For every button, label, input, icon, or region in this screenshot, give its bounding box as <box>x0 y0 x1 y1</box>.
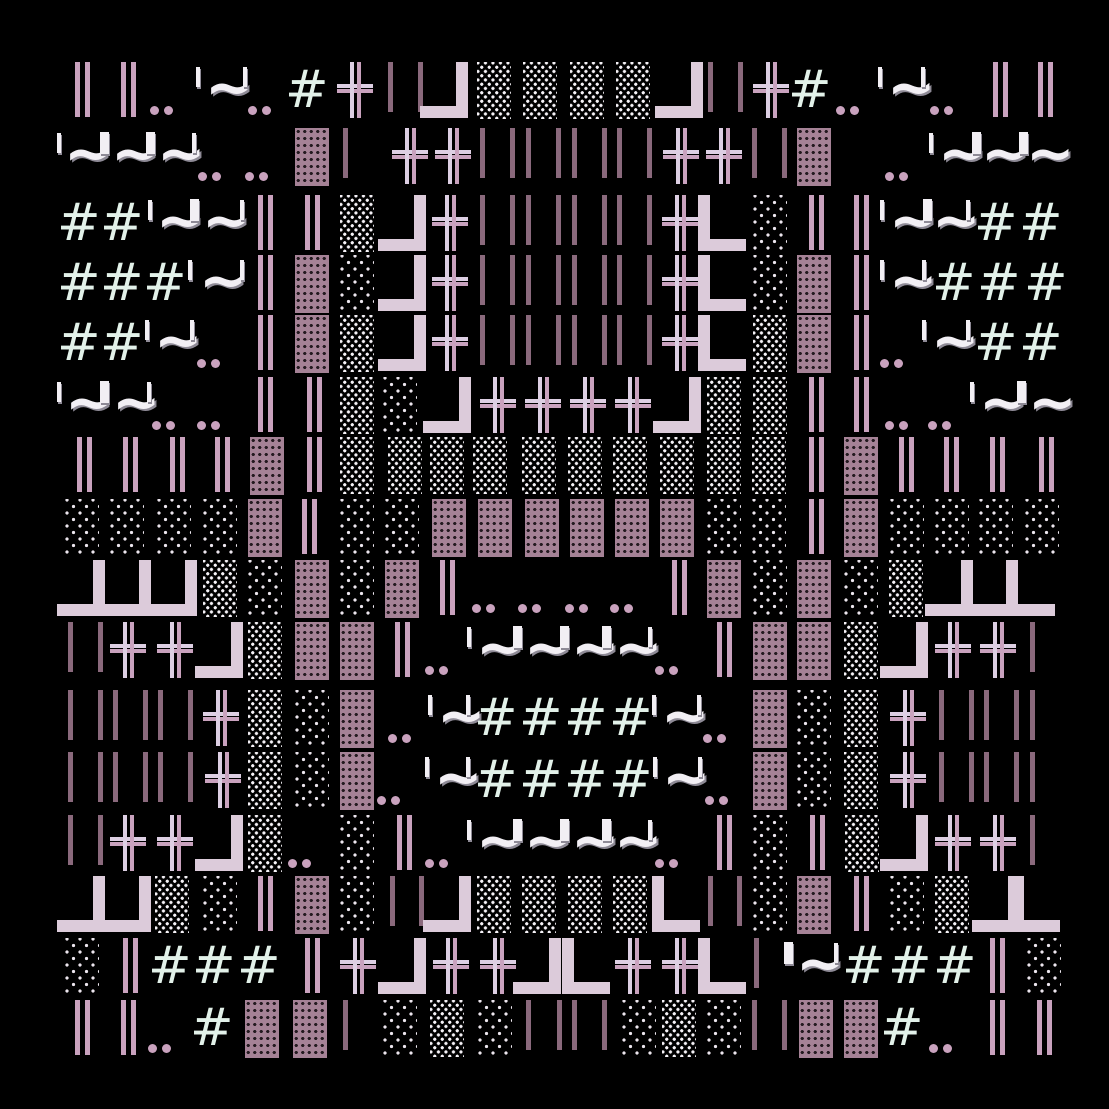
sparse-dot-block <box>203 876 237 933</box>
cross-glyph <box>753 62 789 118</box>
double-bar-glyph <box>307 377 322 432</box>
single-bar-glyph <box>343 1000 348 1050</box>
single-bar-glyph <box>1030 815 1035 865</box>
sparse-dot-block <box>65 499 99 556</box>
dot-pair-glyph <box>472 604 481 613</box>
single-bar-glyph <box>602 128 607 178</box>
dot-pair-glyph <box>885 421 894 430</box>
double-bar-glyph <box>75 1000 90 1055</box>
double-bar-glyph <box>1039 437 1054 492</box>
single-bar-glyph <box>1030 752 1035 802</box>
dense-dot-block <box>155 876 189 933</box>
corner-bottom-left-glyph <box>652 876 700 932</box>
double-bar-glyph <box>258 315 273 370</box>
cross-glyph <box>337 62 373 118</box>
corner-bottom-right-glyph <box>925 560 973 616</box>
single-bar-glyph <box>556 315 561 365</box>
mauve-dither-block <box>797 255 831 313</box>
mauve-dither-block <box>340 752 374 810</box>
sparse-dot-block <box>248 560 282 617</box>
corner-bottom-right-glyph <box>423 876 471 932</box>
cross-glyph <box>110 622 146 678</box>
cross-glyph <box>525 377 561 433</box>
double-bar-glyph <box>215 437 230 492</box>
single-bar-glyph <box>708 876 713 926</box>
quote-glyph <box>878 67 882 87</box>
single-bar-glyph <box>98 752 103 802</box>
hash-glyph: # <box>143 255 187 311</box>
dense-dot-block <box>473 437 507 494</box>
sparse-dot-block <box>890 499 924 556</box>
cross-glyph <box>662 255 698 311</box>
cross-glyph <box>203 690 239 746</box>
sparse-dot-block <box>707 499 741 556</box>
single-bar-glyph <box>647 128 652 178</box>
tilde-glyph: ~ <box>661 689 710 741</box>
tick-glyph <box>923 199 932 221</box>
dot-pair-glyph <box>198 172 207 181</box>
sparse-dot-block <box>890 876 924 933</box>
dense-dot-block <box>523 62 557 119</box>
cross-glyph <box>432 195 468 251</box>
double-bar-glyph <box>121 1000 136 1055</box>
quote-glyph <box>648 627 652 647</box>
mauve-dither-block <box>248 499 282 557</box>
single-bar-glyph <box>556 255 561 305</box>
quote-glyph <box>243 67 247 87</box>
single-bar-glyph <box>98 815 103 865</box>
cross-glyph <box>980 622 1016 678</box>
double-bar-glyph <box>899 437 914 492</box>
single-bar-glyph <box>526 315 531 365</box>
dense-dot-block <box>845 815 879 872</box>
dense-dot-block <box>522 437 556 494</box>
dot-pair-glyph <box>929 1044 938 1053</box>
single-bar-glyph <box>738 62 743 112</box>
cross-glyph <box>480 377 516 433</box>
cross-glyph <box>935 815 971 871</box>
sparse-dot-block <box>753 876 787 933</box>
single-bar-glyph <box>572 315 577 365</box>
single-bar-glyph <box>188 752 193 802</box>
mauve-dither-block <box>525 499 559 557</box>
quote-glyph <box>467 820 471 840</box>
dot-pair-glyph <box>655 666 664 675</box>
quote-glyph <box>190 320 194 340</box>
quote-glyph <box>970 382 974 402</box>
mauve-dither-block <box>660 499 694 557</box>
tick-glyph <box>190 199 199 221</box>
double-bar-glyph <box>809 437 824 492</box>
single-bar-glyph <box>617 128 622 178</box>
quote-glyph <box>240 200 244 220</box>
mauve-dither-block <box>295 315 329 373</box>
single-bar-glyph <box>572 1000 577 1050</box>
tilde-glyph: ~ <box>571 814 620 866</box>
hash-glyph: # <box>842 938 886 994</box>
dense-dot-block <box>753 377 787 434</box>
quote-glyph <box>653 757 657 777</box>
tilde-glyph: ~ <box>887 61 936 113</box>
single-bar-glyph <box>602 195 607 245</box>
dot-pair-glyph <box>288 859 297 868</box>
quote-glyph <box>834 943 838 963</box>
cross-glyph <box>432 255 468 311</box>
cross-glyph <box>205 752 241 808</box>
mauve-dither-block <box>753 690 787 748</box>
tilde-glyph: ~ <box>112 376 161 428</box>
single-bar-glyph <box>510 195 515 245</box>
cross-glyph <box>980 815 1016 871</box>
corner-bottom-right-glyph <box>513 938 561 994</box>
single-bar-glyph <box>510 255 515 305</box>
dense-dot-block <box>616 62 650 119</box>
double-bar-glyph <box>854 315 869 370</box>
single-bar-glyph <box>737 876 742 926</box>
tilde-glyph: ~ <box>571 621 620 673</box>
corner-bottom-right-glyph <box>378 195 426 251</box>
hash-glyph: # <box>1019 195 1063 251</box>
single-bar-glyph <box>647 195 652 245</box>
tick-glyph <box>100 132 109 154</box>
mauve-dither-block <box>295 560 329 618</box>
dense-dot-block <box>388 437 422 494</box>
sparse-dot-block <box>753 195 787 252</box>
ascii-art-canvas: ~##~~~~~~~##~~~~#####~~#####~~##~~~~~~~~… <box>0 0 1109 1109</box>
corner-bottom-right-glyph <box>103 560 151 616</box>
single-bar-glyph <box>1014 752 1019 802</box>
mauve-dither-block <box>385 560 419 618</box>
hash-glyph: # <box>974 315 1018 371</box>
single-bar-glyph <box>68 622 73 672</box>
cross-glyph <box>433 938 469 994</box>
single-bar-glyph <box>969 690 974 740</box>
dot-pair-glyph <box>655 859 664 868</box>
double-bar-glyph <box>258 195 273 250</box>
double-bar-glyph <box>1038 62 1053 117</box>
dense-dot-block <box>889 560 923 617</box>
single-bar-glyph <box>68 752 73 802</box>
sparse-dot-block <box>1027 938 1061 995</box>
cross-glyph <box>615 377 651 433</box>
single-bar-glyph <box>984 690 989 740</box>
single-bar-glyph <box>510 315 515 365</box>
mauve-dither-block <box>753 752 787 810</box>
single-bar-glyph <box>602 1000 607 1050</box>
sparse-dot-block <box>797 690 831 747</box>
double-bar-glyph <box>717 622 732 677</box>
cross-glyph <box>110 815 146 871</box>
hash-glyph: # <box>100 195 144 251</box>
single-bar-glyph <box>68 690 73 740</box>
quote-glyph <box>57 382 61 402</box>
double-bar-glyph <box>672 560 687 615</box>
corner-bottom-right-glyph <box>195 622 243 678</box>
double-bar-glyph <box>121 62 136 117</box>
double-bar-glyph <box>75 62 90 117</box>
hash-glyph: # <box>888 938 932 994</box>
hash-glyph: # <box>57 195 101 251</box>
quote-glyph <box>147 382 151 402</box>
tilde-glyph: ~ <box>1026 127 1075 179</box>
double-bar-glyph <box>170 437 185 492</box>
single-bar-glyph <box>390 876 395 926</box>
mauve-dither-block <box>844 1000 878 1058</box>
tick-glyph <box>1017 381 1026 403</box>
double-bar-glyph <box>854 255 869 310</box>
dense-dot-block <box>844 752 878 809</box>
single-bar-glyph <box>556 128 561 178</box>
cross-glyph <box>615 938 651 994</box>
cross-glyph <box>570 377 606 433</box>
single-bar-glyph <box>939 690 944 740</box>
dense-dot-block <box>340 377 374 434</box>
mauve-dither-block <box>797 876 831 934</box>
double-bar-glyph <box>854 876 869 931</box>
dense-dot-block <box>613 876 647 933</box>
corner-bottom-left-glyph <box>1012 876 1060 932</box>
single-bar-glyph <box>754 938 759 988</box>
double-bar-glyph <box>440 560 455 615</box>
double-bar-glyph <box>810 815 825 870</box>
single-bar-glyph <box>572 195 577 245</box>
dense-dot-block <box>340 437 374 494</box>
mauve-dither-block <box>570 499 604 557</box>
single-bar-glyph <box>752 1000 757 1050</box>
hash-glyph: # <box>519 690 563 746</box>
tick-glyph <box>513 819 522 841</box>
mauve-dither-block <box>295 128 329 186</box>
mauve-dither-block <box>844 499 878 557</box>
dense-dot-block <box>613 437 647 494</box>
hash-glyph: # <box>519 752 563 808</box>
quote-glyph <box>196 67 200 87</box>
single-bar-glyph <box>526 195 531 245</box>
dense-dot-block <box>568 437 602 494</box>
sparse-dot-block <box>340 255 374 312</box>
single-bar-glyph <box>602 315 607 365</box>
quote-glyph <box>880 200 884 220</box>
quote-glyph <box>880 260 884 280</box>
corner-bottom-right-glyph <box>378 315 426 371</box>
sparse-dot-block <box>157 499 191 556</box>
corner-bottom-left-glyph <box>698 938 746 994</box>
cross-glyph <box>340 938 376 994</box>
quote-glyph <box>148 200 152 220</box>
quote-glyph <box>466 695 470 715</box>
dot-pair-glyph <box>197 421 206 430</box>
mauve-dither-block <box>707 560 741 618</box>
sparse-dot-block <box>935 499 969 556</box>
dot-pair-glyph <box>880 359 889 368</box>
corner-bottom-right-glyph <box>378 938 426 994</box>
double-bar-glyph <box>395 622 410 677</box>
tick-glyph <box>560 626 569 648</box>
corner-bottom-right-glyph <box>970 560 1018 616</box>
tilde-glyph: ~ <box>889 254 938 306</box>
single-bar-glyph <box>782 128 787 178</box>
single-bar-glyph <box>158 752 163 802</box>
single-bar-glyph <box>617 255 622 305</box>
quote-glyph <box>428 695 432 715</box>
mauve-dither-block <box>844 437 878 495</box>
sparse-dot-block <box>752 499 786 556</box>
sparse-dot-block <box>110 499 144 556</box>
dense-dot-block <box>248 690 282 747</box>
tick-glyph <box>146 132 155 154</box>
dense-dot-block <box>248 752 282 809</box>
mauve-dither-block <box>797 128 831 186</box>
single-bar-glyph <box>343 128 348 178</box>
corner-bottom-right-glyph <box>420 62 468 118</box>
double-bar-glyph <box>77 437 92 492</box>
single-bar-glyph <box>526 255 531 305</box>
hash-glyph: # <box>932 255 976 311</box>
single-bar-glyph <box>510 128 515 178</box>
corner-bottom-right-glyph <box>880 622 928 678</box>
corner-bottom-right-glyph <box>57 876 105 932</box>
tick-glyph <box>513 626 522 648</box>
cross-glyph <box>432 315 468 371</box>
corner-bottom-right-glyph <box>103 876 151 932</box>
quote-glyph <box>652 695 656 715</box>
mauve-dither-block <box>797 560 831 618</box>
double-bar-glyph <box>809 499 824 554</box>
quote-glyph <box>466 757 470 777</box>
single-bar-glyph <box>556 195 561 245</box>
quote-glyph <box>188 260 192 280</box>
sparse-dot-block <box>797 752 831 809</box>
dot-pair-glyph <box>152 421 161 430</box>
hash-glyph: # <box>564 752 608 808</box>
cross-glyph <box>935 622 971 678</box>
cross-glyph <box>662 938 698 994</box>
double-bar-glyph <box>305 195 320 250</box>
hash-glyph: # <box>148 938 192 994</box>
sparse-dot-block <box>340 815 374 872</box>
quote-glyph <box>192 133 196 153</box>
double-bar-glyph <box>123 938 138 993</box>
hash-glyph: # <box>100 315 144 371</box>
quote-glyph <box>966 320 970 340</box>
mauve-dither-block <box>245 1000 279 1058</box>
corner-bottom-right-glyph <box>423 377 471 433</box>
dot-pair-glyph <box>388 734 397 743</box>
hash-glyph: # <box>933 938 977 994</box>
hash-glyph: # <box>237 938 281 994</box>
hash-glyph: # <box>880 1000 924 1056</box>
corner-bottom-right-glyph <box>57 560 105 616</box>
dot-pair-glyph <box>197 359 206 368</box>
mauve-dither-block <box>615 499 649 557</box>
dense-dot-block <box>844 690 878 747</box>
hash-glyph: # <box>609 752 653 808</box>
sparse-dot-block <box>385 499 419 556</box>
dense-dot-block <box>570 62 604 119</box>
single-bar-glyph <box>1030 690 1035 740</box>
cross-glyph <box>890 752 926 808</box>
sparse-dot-block <box>1025 499 1059 556</box>
hash-glyph: # <box>100 255 144 311</box>
mauve-dither-block <box>295 622 329 680</box>
mauve-dither-block <box>432 499 466 557</box>
single-bar-glyph <box>984 752 989 802</box>
single-bar-glyph <box>388 62 393 112</box>
quote-glyph <box>921 67 925 87</box>
dense-dot-block <box>660 437 694 494</box>
single-bar-glyph <box>572 128 577 178</box>
cross-glyph <box>662 315 698 371</box>
single-bar-glyph <box>480 255 485 305</box>
mauve-dither-block <box>295 255 329 313</box>
mauve-dither-block <box>250 437 284 495</box>
corner-bottom-right-glyph <box>378 255 426 311</box>
sparse-dot-block <box>383 1000 417 1057</box>
dense-dot-block <box>935 876 969 933</box>
double-bar-glyph <box>944 437 959 492</box>
corner-bottom-left-glyph <box>698 255 746 311</box>
hash-glyph: # <box>564 690 608 746</box>
single-bar-glyph <box>98 622 103 672</box>
single-bar-glyph <box>480 195 485 245</box>
sparse-dot-block <box>340 499 374 556</box>
cross-glyph <box>663 128 699 184</box>
dot-pair-glyph <box>150 106 159 115</box>
sparse-dot-block <box>622 1000 656 1057</box>
corner-bottom-right-glyph <box>195 815 243 871</box>
double-bar-glyph <box>258 876 273 931</box>
double-bar-glyph <box>307 437 322 492</box>
single-bar-glyph <box>572 255 577 305</box>
single-bar-glyph <box>158 690 163 740</box>
dense-dot-block <box>662 1000 696 1057</box>
dense-dot-block <box>568 876 602 933</box>
sparse-dot-block <box>753 560 787 617</box>
single-bar-glyph <box>113 752 118 802</box>
floor-bar-glyph <box>1015 560 1055 616</box>
single-bar-glyph <box>480 128 485 178</box>
sparse-dot-block <box>383 377 417 434</box>
sparse-dot-block <box>753 255 787 312</box>
dense-dot-block <box>707 377 741 434</box>
corner-bottom-left-glyph <box>698 195 746 251</box>
single-bar-glyph <box>708 62 713 112</box>
tick-glyph <box>560 819 569 841</box>
tick-glyph <box>100 381 109 403</box>
cross-glyph <box>706 128 742 184</box>
cross-glyph <box>890 690 926 746</box>
hash-glyph: # <box>609 690 653 746</box>
quote-glyph <box>698 757 702 777</box>
quote-glyph <box>57 133 61 153</box>
sparse-dot-block <box>203 499 237 556</box>
dot-pair-glyph <box>148 1044 157 1053</box>
single-bar-glyph <box>782 1000 787 1050</box>
single-bar-glyph <box>617 195 622 245</box>
dot-pair-glyph <box>705 796 714 805</box>
quote-glyph <box>922 320 926 340</box>
tilde-glyph: ~ <box>157 127 206 179</box>
quote-glyph <box>648 820 652 840</box>
double-bar-glyph <box>397 815 412 870</box>
single-bar-glyph <box>557 1000 562 1050</box>
mauve-dither-block <box>797 622 831 680</box>
cross-glyph <box>435 128 471 184</box>
dot-pair-glyph <box>377 796 386 805</box>
dot-pair-glyph <box>610 604 619 613</box>
double-bar-glyph <box>990 1000 1005 1055</box>
tilde-glyph: ~ <box>1028 376 1077 428</box>
